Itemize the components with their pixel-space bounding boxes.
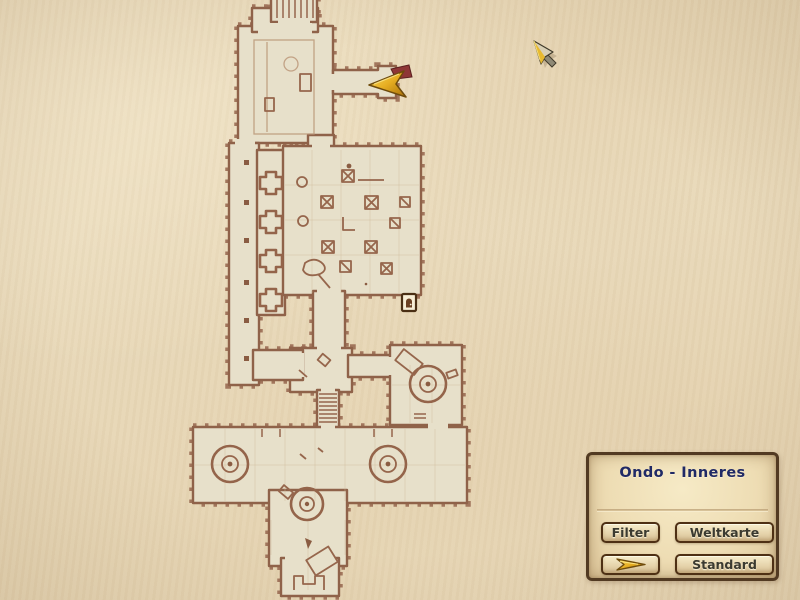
standard-button[interactable]: Standard bbox=[675, 554, 774, 575]
center-on-player-button[interactable] bbox=[601, 554, 660, 575]
panel-divider bbox=[597, 509, 768, 511]
location-title: Ondo - Inneres bbox=[589, 465, 776, 481]
mouse-cursor-arrow-icon bbox=[534, 41, 557, 68]
entrance-stairs bbox=[277, 0, 313, 18]
weltkarte-button[interactable]: Weltkarte bbox=[675, 522, 774, 543]
map-screen: Ondo - Inneres Filter Weltkarte Standard bbox=[0, 0, 800, 600]
filter-button[interactable]: Filter bbox=[601, 522, 660, 543]
gold-arrow-icon bbox=[614, 557, 648, 572]
map-info-panel: Ondo - Inneres Filter Weltkarte Standard bbox=[586, 452, 779, 581]
door-icon bbox=[402, 294, 416, 311]
